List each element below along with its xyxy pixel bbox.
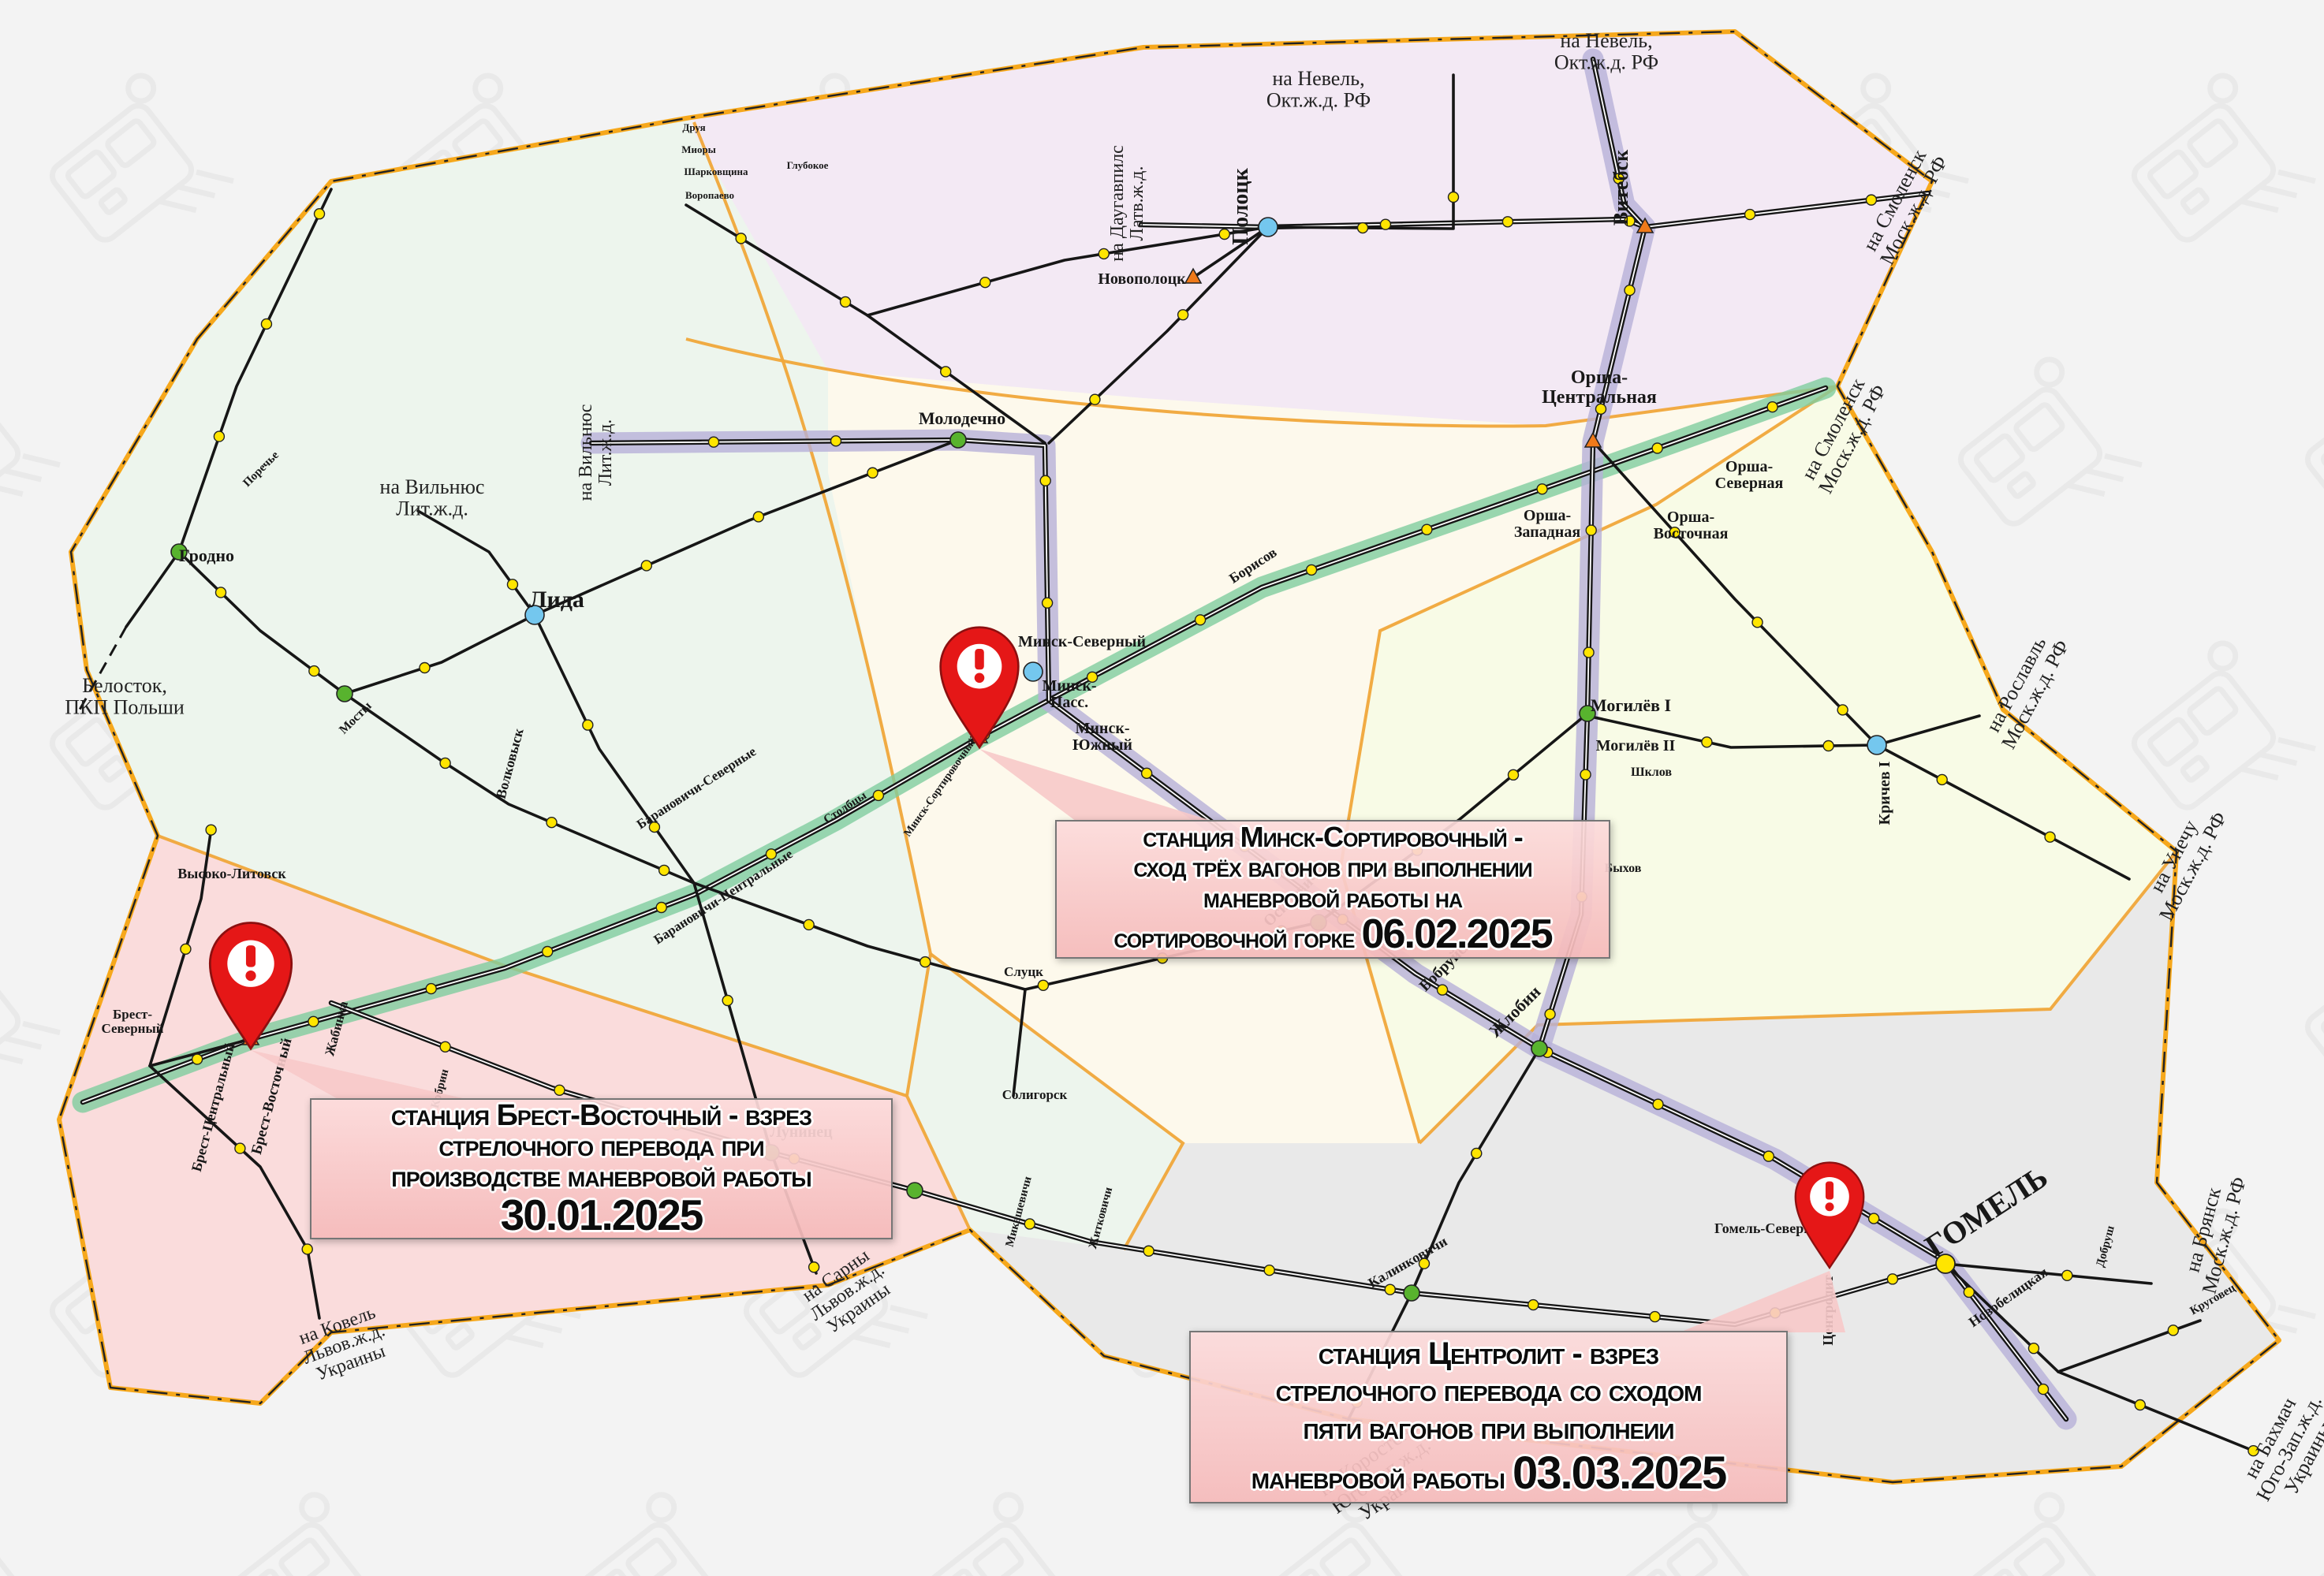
station-label: Солигорск [1002, 1087, 1068, 1102]
station-dot [426, 984, 436, 994]
station-dot [507, 579, 517, 590]
station-dot [543, 946, 553, 956]
station-dot [546, 818, 557, 828]
station-dot [440, 758, 450, 768]
station-dot [216, 587, 226, 598]
incident-date: 30.01.2025 [501, 1190, 703, 1239]
station-label: Кричев I [1876, 761, 1893, 825]
station-dot [2135, 1400, 2145, 1410]
station-dot [656, 902, 666, 912]
station-label: Высоко-Литовск [177, 866, 286, 881]
station-dot [941, 367, 951, 377]
station-dot [753, 512, 763, 522]
station-dot [308, 1016, 319, 1026]
station-dot [235, 1143, 245, 1153]
station-dot [2168, 1325, 2178, 1336]
callout-line: пяти вагонов при выполнеии [1304, 1413, 1674, 1445]
station-dot [181, 944, 191, 954]
station-dot [1380, 219, 1390, 229]
exit-label: на Невель,Окт.ж.д. РФ [1266, 67, 1371, 111]
railway-map-page: { "map": { "colors": { "outside": "#f3f3… [0, 0, 2324, 1576]
station-dot [1422, 524, 1432, 535]
station-dot [1307, 564, 1317, 575]
incident-callout-brest: станция Брест-Восточный - взрезстрелочно… [310, 1098, 893, 1239]
station-dot [420, 662, 430, 673]
station-dot [659, 865, 670, 875]
exclamation-icon [246, 945, 256, 967]
station-dot [1043, 598, 1053, 608]
callout-line: маневровой работы 03.03.2025 [1252, 1450, 1726, 1496]
station-dot [1024, 1219, 1035, 1229]
station-dot [440, 1041, 450, 1052]
station-dot [1502, 217, 1513, 227]
station-dot [736, 233, 746, 244]
station-dot [1385, 1284, 1395, 1295]
station-dot [867, 468, 878, 478]
station-dot [980, 278, 990, 288]
station-dot [1964, 1287, 1974, 1297]
large-station-dot [337, 686, 353, 702]
station-label: Минск-Северный [1018, 633, 1146, 650]
incident-callout-minsk: станция Минск-Сортировочный -сход трёх в… [1055, 820, 1610, 959]
callout-line: сортировочной горке 06.02.2025 [1114, 914, 1551, 956]
station-dot [641, 561, 651, 571]
major-station-dot [1867, 736, 1886, 754]
station-dot [583, 720, 593, 730]
station-dot [315, 209, 325, 219]
exclamation-icon [1826, 1182, 1833, 1200]
station-dot [1143, 1246, 1154, 1256]
station-dot [261, 319, 271, 329]
station-dot [708, 437, 718, 447]
station-dot [1264, 1265, 1274, 1276]
station-dot [804, 919, 814, 930]
station-dot [1142, 768, 1152, 778]
station-dot [192, 1054, 203, 1064]
station-dot [554, 1085, 565, 1095]
callout-line: станция Центролит - взрез [1319, 1338, 1658, 1370]
station-dot [1767, 402, 1778, 412]
map-canvas: на Невель,Окт.ж.д. РФна Невель,Окт.ж.д. … [0, 0, 2324, 1576]
large-station-dot [1404, 1285, 1419, 1301]
station-label: Полоцк [1229, 167, 1253, 244]
station-dot [1584, 647, 1594, 658]
large-station-dot [907, 1183, 923, 1198]
station-label: Минск-Пасс. [1043, 677, 1097, 711]
incident-callout-gomel: станция Центролит - взрезстрелочного пер… [1189, 1331, 1788, 1503]
station-dot [1537, 484, 1547, 494]
station-dot [2028, 1343, 2039, 1354]
incident-date: 03.03.2025 [1513, 1447, 1725, 1499]
callout-line: стрелочного перевода при [438, 1131, 763, 1162]
station-dot [1763, 1151, 1774, 1161]
station-label: Новополоцк [1098, 270, 1186, 288]
station-label: Орша-Западная [1514, 507, 1580, 541]
station-label: Шарковщина [685, 166, 748, 177]
station-dot [1196, 615, 1206, 625]
station-label: Могилёв II [1596, 737, 1676, 754]
station-dot [920, 957, 931, 967]
callout-line: 30.01.2025 [501, 1193, 703, 1237]
exclamation-dot-icon [245, 971, 256, 981]
callout-line: сход трёх вагонов при выполнении [1133, 853, 1531, 882]
station-label: Витебск [1610, 150, 1632, 225]
station-label: Миоры [681, 143, 716, 155]
station-dot [214, 431, 224, 442]
station-label: Глубокое [787, 159, 829, 171]
station-dot [873, 790, 883, 800]
station-dot [1449, 192, 1459, 203]
station-dot [1528, 1300, 1539, 1310]
station-dot [1937, 774, 1947, 784]
station-dot [1090, 394, 1100, 404]
callout-line: маневровой работы на [1203, 884, 1462, 913]
station-dot [2039, 1384, 2049, 1395]
callout-line: станция Минск-Сортировочный - [1143, 823, 1523, 852]
station-dot [1652, 443, 1662, 453]
exclamation-dot-icon [975, 673, 985, 684]
incident-date: 06.02.2025 [1361, 911, 1551, 957]
station-label: Молодечно [919, 408, 1005, 428]
station-label: Воропаево [685, 189, 734, 201]
major-station-dot [1259, 218, 1278, 237]
station-dot [206, 825, 216, 835]
station-dot [1508, 769, 1518, 780]
station-dot [1745, 210, 1755, 220]
station-dot [1752, 617, 1763, 628]
station-dot [1866, 195, 1876, 205]
station-dot [1580, 769, 1591, 780]
station-dot [1472, 1148, 1482, 1158]
exit-label: Белосток,ПКП Польши [65, 674, 185, 718]
station-dot [302, 1244, 312, 1254]
station-dot [1625, 285, 1635, 296]
station-dot [1586, 525, 1596, 535]
station-dot [841, 296, 851, 307]
callout-line: станция Брест-Восточный - взрез [391, 1101, 811, 1131]
station-dot [1038, 980, 1048, 990]
station-dot [1837, 705, 1848, 715]
station-label: Лида [529, 587, 584, 613]
station-dot [309, 666, 319, 676]
exit-label: на Невель,Окт.ж.д. РФ [1554, 29, 1658, 73]
station-dot [1040, 475, 1050, 486]
station-dot [1545, 1009, 1555, 1019]
station-dot [1869, 1213, 1879, 1224]
station-dot [1650, 1312, 1660, 1322]
station-dot [2062, 1270, 2072, 1280]
station-dot [1823, 740, 1833, 751]
station-label: Шклов [1631, 766, 1672, 779]
station-label: Гродно [179, 546, 234, 565]
station-dot [1178, 310, 1188, 320]
large-station-dot [950, 432, 966, 448]
exclamation-dot-icon [1825, 1202, 1833, 1211]
station-label: Минск-Южный [1072, 720, 1132, 754]
large-station-dot [1531, 1041, 1547, 1056]
station-dot [1653, 1099, 1663, 1109]
station-dot [1887, 1274, 1897, 1284]
station-dot [830, 436, 841, 446]
station-dot [1438, 985, 1448, 995]
station-dot [722, 996, 733, 1006]
major-station-dot [1024, 662, 1043, 681]
station-dot [2045, 832, 2055, 842]
callout-line: производстве маневровой работы [391, 1162, 811, 1193]
station-dot [809, 1262, 819, 1272]
station-label: Друя [682, 121, 705, 133]
callout-line: стрелочного перевода со сходом [1276, 1375, 1702, 1407]
station-dot [1702, 737, 1712, 747]
exclamation-icon [975, 649, 984, 669]
station-dot [1358, 223, 1368, 233]
station-label: Слуцк [1004, 964, 1043, 979]
station-label: Могилёв I [1591, 695, 1671, 715]
